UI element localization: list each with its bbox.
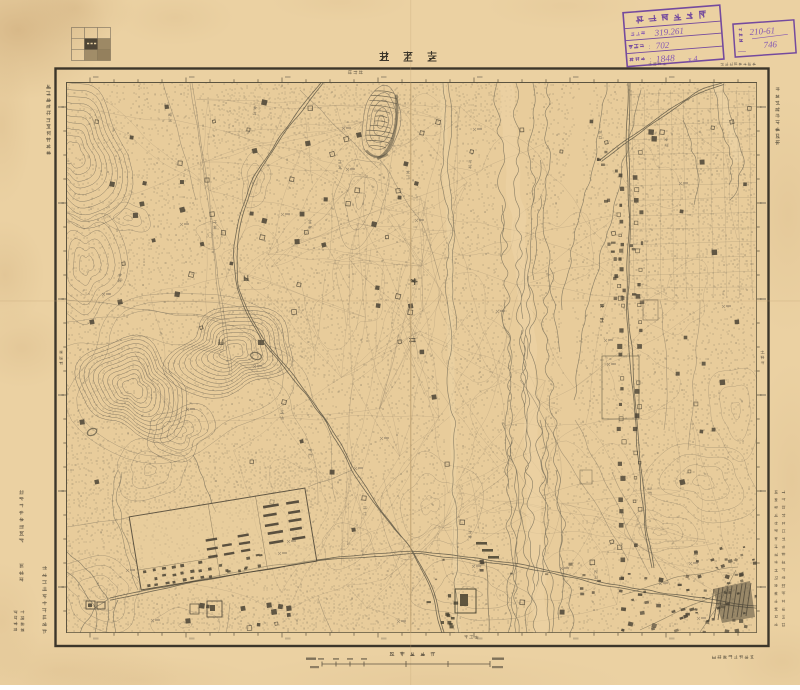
- svg-text:702: 702: [655, 40, 670, 51]
- svg-text:1848: 1848: [655, 54, 675, 65]
- svg-text:746: 746: [763, 39, 778, 50]
- svg-text:210-61: 210-61: [749, 25, 775, 37]
- svg-text:x.4: x.4: [687, 54, 698, 64]
